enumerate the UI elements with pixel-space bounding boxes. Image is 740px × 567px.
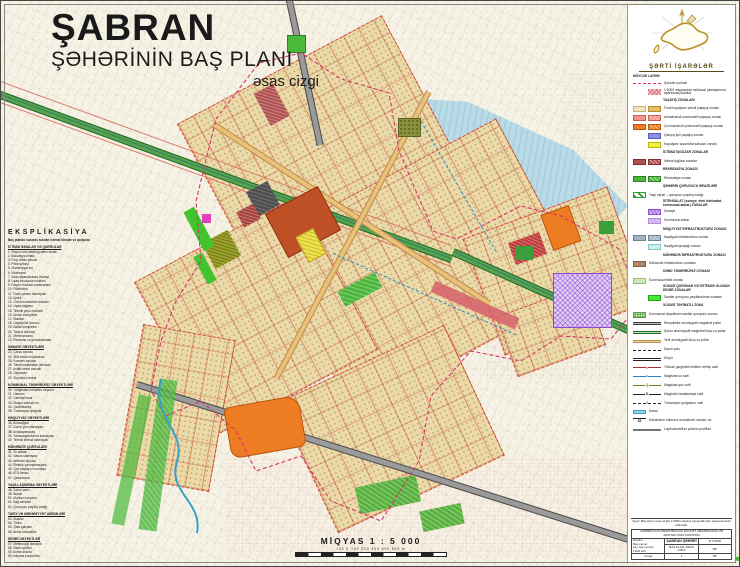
explication-section-header: İCTİMAİ BİNALAR VƏ QURĞULAR [8, 245, 126, 249]
explication-section-items: 53. Məscid 54. Türbə 55. Qala qalıqları … [8, 517, 126, 534]
title-block-stage: BP [698, 545, 731, 554]
legend-swatch-project [648, 295, 661, 301]
legend-symbol-letter: K [645, 393, 648, 396]
title-block-roles: Direktor Baş memar Lay. baş memarı Tərti… [632, 538, 665, 554]
legend-row: Kommunal obyektlərin sanitar qoruyucu zo… [633, 310, 732, 319]
legend-row-label: İSTEHSALAT (sənaye, elmi istehsalat, kom… [663, 200, 732, 208]
explication-section: YAŞILLAŞDIRMA OBYEKTLƏRİ 48. Şəhər parkı… [8, 483, 126, 509]
legend-row-label: Yaşıl ekran – qoruyucu yaşıllıq zolağı [649, 194, 703, 198]
legend-row-label: Kənd təsərrüfatı zonası [649, 279, 683, 283]
legend-swatch-project [648, 89, 661, 95]
legend-row: İCTİMAİ İŞGÜZAR ZONALAR [633, 149, 732, 157]
legend-row-label: Nəqliyyat qovşağı zonası [664, 245, 701, 249]
scale-block: MİQYAS 1 : 5 000 100 0 100 200 300 400 5… [289, 536, 453, 557]
legend-row: Mühəndis infrastrukturu zonaları [633, 259, 732, 268]
legend-row-label: Sənaye [664, 210, 675, 214]
legend-row: Sanitar qoruyucu yaşıllandırma zonaları [633, 293, 732, 302]
explication-section: NƏQLİYYAT OBYEKTLƏRİ 36. Avtovağzal 37. … [8, 416, 126, 442]
legend-row-label: ŞƏHƏRİN QORUYUCU ƏRAZİLƏRİ [663, 185, 717, 189]
legend-col-existing: MÖVCUD [633, 74, 648, 78]
legend-row-label: Magistral kanalizasiya xətti [664, 393, 703, 397]
legend-row: Dəmir yolu [633, 346, 732, 355]
legend-row-label: Layihələndirilən yolların profilləri [664, 428, 711, 432]
legend-swatch-project [648, 115, 661, 121]
title-line3: əsas cizgi [51, 73, 319, 90]
legend-swatch-existing [633, 209, 646, 215]
title-block-table: AZƏRBAYCAN RESPUBLİKASI DÖVLƏT ŞƏHƏRSALM… [631, 529, 732, 560]
legend-panel: ŞƏRTİ İŞARƏLƏR MÖVCUD LAYİHƏ Şəhərin sər… [627, 5, 735, 562]
explication-section-header: SƏNAYE OBYEKTLƏRİ [8, 345, 126, 349]
legend-swatch-existing [633, 358, 661, 361]
legend-swatch-existing [633, 331, 661, 334]
legend-row: MÜHƏNDİS İNFRASTRUKTURU ZONASI [633, 251, 732, 259]
explication-section-items: 1. Rayon icra hakimiyyətinin binası 2. B… [8, 250, 126, 343]
legend-swatch-existing [633, 261, 646, 267]
legend-row-label: YAŞAYIŞ ZONALARI [663, 99, 695, 103]
legend-row: İctimai işgüzar zonalar [633, 157, 732, 166]
legend-swatch-project [648, 133, 661, 139]
explication-section-header: YAŞILLAŞDIRMA OBYEKTLƏRİ [8, 483, 126, 487]
explication-section: SƏNAYE OBYEKTLƏRİ 23. Çörək zavodu 24. S… [8, 345, 126, 380]
legend-column-headers: MÖVCUD LAYİHƏ [633, 74, 732, 78]
legend-swatch-project [648, 124, 661, 130]
legend-row: Şəhərin sərhədi [633, 79, 732, 88]
legend-swatch-existing: f [633, 403, 661, 404]
legend-swatch-project [648, 176, 661, 182]
green-zone-patch [515, 246, 533, 260]
legend-row: 83 Məhəllənin nömrəsi; məhəllənin sahəsi… [633, 417, 732, 426]
legend-swatch-existing [633, 278, 646, 284]
legend-swatch-existing [633, 340, 661, 343]
explication-section-items: 48. Şəhər parkı 49. Bulvar 50. Mərkəzi m… [8, 488, 126, 509]
title-block-sheet-no: 1 [665, 554, 698, 560]
scale-bar [295, 552, 447, 557]
legend-row-label: Yüksək gərginlikli elektrik verilişi xət… [664, 366, 718, 370]
legend-row-label: İCTİMAİ İŞGÜZAR ZONALAR [663, 151, 708, 155]
legend-row: e Yüksək gərginlikli elektrik verilişi x… [633, 363, 732, 372]
legend-row: Sənaye [633, 208, 732, 217]
explication-panel: EKSPLİKASİYA Baş planda nəzərdə tutulan … [8, 229, 126, 559]
legend-swatch-existing [633, 89, 646, 95]
explication-section-items: 57. Meteoroloji stansiya 58. Radio qüllə… [8, 542, 126, 559]
legend-row-label: 1:5000 miqyasında müfəssəl planlaşdırma … [664, 89, 732, 97]
legend-row: Nəqliyyat infrastrukturu zonası [633, 234, 732, 243]
explication-section-header: MÜHƏNDİS QURĞULARI [8, 445, 126, 449]
legend-row-label: Magistral qaz xətti [664, 384, 691, 388]
legend-row: Yerli əhəmiyyətli küçə və yollar [633, 337, 732, 346]
legend-rows: Şəhərin sərhədi 1:5000 miqyasında müfəss… [631, 79, 732, 516]
title-block-org: AZƏRBAYCAN RESPUBLİKASI DÖVLƏT ŞƏHƏRSALM… [632, 529, 732, 538]
legend-row-label: İctimai işgüzar zonalar [664, 160, 697, 164]
explication-section-items: 23. Çörək zavodu 24. Süd emalı müəssisəs… [8, 350, 126, 380]
explication-section-header: TARİX VƏ MƏDƏNİYYƏT ABİDƏLƏRİ [8, 512, 126, 516]
legend-swatch-project [648, 244, 661, 250]
legend-row: ŞƏHƏRİN QORUYUCU ƏRAZİLƏRİ [633, 183, 732, 191]
legend-swatch-project [648, 218, 661, 224]
legend-row-label: Rekreasiya zonası [664, 177, 691, 181]
legend-row: REKREASİYA ZONASI [633, 166, 732, 174]
legend-row: K Magistral kanalizasiya xətti [633, 390, 732, 399]
title-block-stage2: BP [698, 554, 731, 560]
legend-symbol-letter: e [646, 367, 649, 370]
explication-section-items: 36. Avtovağzal 37. Dəmir yolu stansiyası… [8, 421, 126, 442]
legend-row: Kommunal-anbar [633, 217, 732, 226]
legend-row-label: Azmərtəbəli çoxmənzilli yaşayış zonası [664, 116, 721, 120]
legend-symbol-letter: Q [645, 384, 648, 387]
title-block-sheet-label: Vərəq [632, 554, 665, 560]
legend-swatch-existing [633, 410, 646, 414]
explication-section: İCTİMAİ BİNALAR VƏ QURĞULAR 1. Rayon icr… [8, 245, 126, 343]
legend-row: f Təmizləyici qurğuların xətti [633, 399, 732, 408]
scale-ticks: 100 0 100 200 300 400 500 m [289, 547, 453, 551]
city-name-title: ŞABRAN [51, 9, 319, 48]
legend-swatch-existing [633, 176, 646, 182]
legend-swatch-existing: K [633, 394, 661, 395]
legend-swatch-project [648, 142, 661, 148]
legend-row: Çoxmərtəbəli çoxmənzilli yaşayış zonası [633, 123, 732, 132]
legend-row-label: Dəmir yolu [664, 348, 680, 352]
legend-swatch-project [648, 235, 661, 241]
legend-swatch-existing [633, 235, 646, 241]
legend-row-label: Şəhər əhəmiyyətli magistral küçə və yoll… [664, 330, 726, 334]
legend-row-label: REKREASİYA ZONASI [663, 168, 698, 172]
green-zone-patch [599, 221, 614, 234]
legend-symbol-letter: f [646, 402, 648, 405]
legend-row-label: Şəhərin sərhədi [664, 82, 687, 86]
orchard-patch-in-floodplain [398, 118, 421, 137]
legend-row-label: Nəqliyyat infrastrukturu zonası [664, 236, 708, 240]
legend-row-label: Təmizləyici qurğuların xətti [664, 402, 703, 406]
legend-row-label: NƏQLİYYAT İNFRASTRUKTURU ZONASI [663, 228, 726, 232]
legend-row-label: KƏND TƏSƏRRÜFATI ZONASI [663, 270, 710, 274]
legend-swatch-existing [633, 83, 646, 84]
azerbaijan-locator [631, 7, 732, 63]
legend-symbol-letter: 83 [637, 420, 642, 423]
explication-section: KOMMUNAL TƏSƏRRÜFAT OBYEKTLƏRİ 30. Yanğı… [8, 383, 126, 413]
legend-row-label: Həyətyanı təsərrüfat sahələri zonası [664, 143, 717, 147]
explication-title: EKSPLİKASİYA [8, 229, 126, 236]
legend-row-label: MÜHƏNDİS İNFRASTRUKTURU ZONASI [663, 254, 726, 258]
legend-row-label: Körpü [664, 357, 673, 361]
legend-swatch-existing [633, 429, 661, 432]
legend-swatch-existing: 83 [633, 418, 646, 424]
legend-swatch-existing [633, 142, 646, 148]
legend-row: Layihələndirilən yolların profilləri [633, 426, 732, 435]
explication-section-items: 30. Yanğından mühafizə deposu 31. Hamam … [8, 388, 126, 413]
legend-swatch-existing: e [633, 367, 661, 368]
legend-row: s Magistral su xətti [633, 372, 732, 381]
legend-row: Q Magistral qaz xətti [633, 381, 732, 390]
legend-row-label: Çoxmərtəbəli çoxmənzilli yaşayış zonası [664, 125, 723, 129]
explication-section-header: KOMMUNAL TƏSƏRRÜFAT OBYEKTLƏRİ [8, 383, 126, 387]
legend-swatch-existing [633, 312, 646, 318]
explication-section-header: DİGƏR OBYEKTLƏR [8, 537, 126, 541]
legend-row: Fərdi həyətyanı sahəli yaşayış zonası [633, 105, 732, 114]
legend-swatch-existing [633, 115, 646, 121]
legend-swatch-project [648, 209, 661, 215]
legend-row: Şəhər əhəmiyyətli magistral küçə və yoll… [633, 328, 732, 337]
map-sheet: ŞABRAN ŞƏHƏRİNİN BAŞ PLANI əsas cizgi EK… [0, 0, 740, 567]
legend-row: Körpü [633, 355, 732, 364]
legend-title: ŞƏRTİ İŞARƏLƏR [639, 64, 724, 72]
scale-label: MİQYAS 1 : 5 000 [289, 536, 453, 546]
legend-row: Azmərtəbəli çoxmənzilli yaşayış zonası [633, 114, 732, 123]
legend-swatch-existing: Q [633, 385, 661, 386]
legend-row: XÜSUSİ TƏYİNATLI ZONA [633, 302, 732, 310]
legend-swatch-existing [633, 295, 646, 301]
legend-row: Qarışıq tipli yaşayış zonası [633, 131, 732, 140]
legend-symbol-letter: s [646, 375, 649, 378]
legend-row: KƏND TƏSƏRRÜFATI ZONASI [633, 268, 732, 276]
legend-row-label: XÜSUSİ QORUNAN VƏ İSTİFADƏ OLUNAN DİGƏR … [663, 285, 732, 293]
legend-row: Rekreasiya zonası [633, 174, 732, 183]
legend-row-label: Qarışıq tipli yaşayış zonası [664, 134, 703, 138]
legend-swatch-project [648, 83, 661, 84]
legend-swatch-existing [633, 133, 646, 139]
legend-row: Kanal [633, 408, 732, 417]
legend-row: Nəqliyyat qovşağı zonası [633, 243, 732, 252]
title-line2: ŞƏHƏRİNİN BAŞ PLANI [51, 48, 319, 72]
legend-row: Həyətyanı təsərrüfat sahələri zonası [633, 140, 732, 149]
title-block-drawing: BAŞ PLAN. ƏSAS CİZGİ [665, 545, 698, 554]
drawing-title-block: Qeyd: Baş planın əsas cizgisi 1:5000 miq… [631, 518, 732, 560]
explication-section-items: 41. Su anbarı 42. Nasos stansiyası 43. A… [8, 450, 126, 480]
legend-swatch-existing [633, 218, 646, 224]
legend-row-label: Magistral su xətti [664, 375, 689, 379]
legend-row: NƏQLİYYAT İNFRASTRUKTURU ZONASI [633, 226, 732, 234]
legend-swatch-existing [633, 322, 661, 325]
legend-row-label: Yerli əhəmiyyətli küçə və yollar [664, 339, 709, 343]
legend-row-label: Kanal [649, 410, 657, 414]
legend-swatch-existing [633, 350, 661, 351]
legend-row-label: Kommunal-anbar [664, 219, 689, 223]
explication-section: DİGƏR OBYEKTLƏR 57. Meteoroloji stansiya… [8, 537, 126, 559]
legend-row-label: XÜSUSİ TƏYİNATLI ZONA [663, 304, 703, 308]
legend-row: Respublika əhəmiyyətli magistral yollar [633, 319, 732, 328]
legend-swatch-project [648, 106, 661, 112]
explication-section: TARİX VƏ MƏDƏNİYYƏT ABİDƏLƏRİ 53. Məscid… [8, 512, 126, 534]
industry-zone-patch [553, 273, 612, 328]
legend-row: 1:5000 miqyasında müfəssəl planlaşdırma … [633, 88, 732, 97]
map-title: ŞABRAN ŞƏHƏRİNİN BAŞ PLANI əsas cizgi [51, 9, 319, 90]
legend-row-label: Kommunal obyektlərin sanitar qoruyucu zo… [649, 313, 718, 317]
legend-row-label: Sanitar qoruyucu yaşıllandırma zonaları [664, 296, 722, 300]
legend-row: İSTEHSALAT (sənaye, elmi istehsalat, kom… [633, 200, 732, 208]
legend-swatch-existing [633, 124, 646, 130]
legend-swatch-existing [633, 244, 646, 250]
explication-subtitle: Baş planda nəzərdə tutulan ictimai binal… [8, 238, 126, 242]
explication-sections: İCTİMAİ BİNALAR VƏ QURĞULAR 1. Rayon icr… [8, 245, 126, 559]
title-block-note: Qeyd: Baş planın əsas cizgisi 1:5000 miq… [631, 520, 732, 527]
special-zone-dot [202, 214, 211, 223]
legend-swatch-project [648, 159, 661, 165]
legend-row: YAŞAYIŞ ZONALARI [633, 97, 732, 105]
legend-row-label: Respublika əhəmiyyətli magistral yollar [664, 322, 721, 326]
explication-section: MÜHƏNDİS QURĞULARI 41. Su anbarı 42. Nas… [8, 445, 126, 480]
legend-row-label: Mühəndis infrastrukturu zonaları [649, 262, 696, 266]
azerbaijan-map-icon [632, 7, 732, 63]
legend-swatch-existing [633, 159, 646, 165]
explication-section-header: NƏQLİYYAT OBYEKTLƏRİ [8, 416, 126, 420]
legend-col-project: LAYİHƏ [648, 74, 665, 78]
legend-row-label: Fərdi həyətyanı sahəli yaşayış zonası [664, 107, 719, 111]
legend-row-label: Məhəllənin nömrəsi; məhəllənin sahəsi, h… [649, 419, 711, 423]
legend-row: XÜSUSİ QORUNAN VƏ İSTİFADƏ OLUNAN DİGƏR … [633, 285, 732, 293]
legend-swatch-existing: s [633, 376, 661, 377]
legend-swatch-existing [633, 106, 646, 112]
legend-swatch-existing [633, 192, 646, 198]
